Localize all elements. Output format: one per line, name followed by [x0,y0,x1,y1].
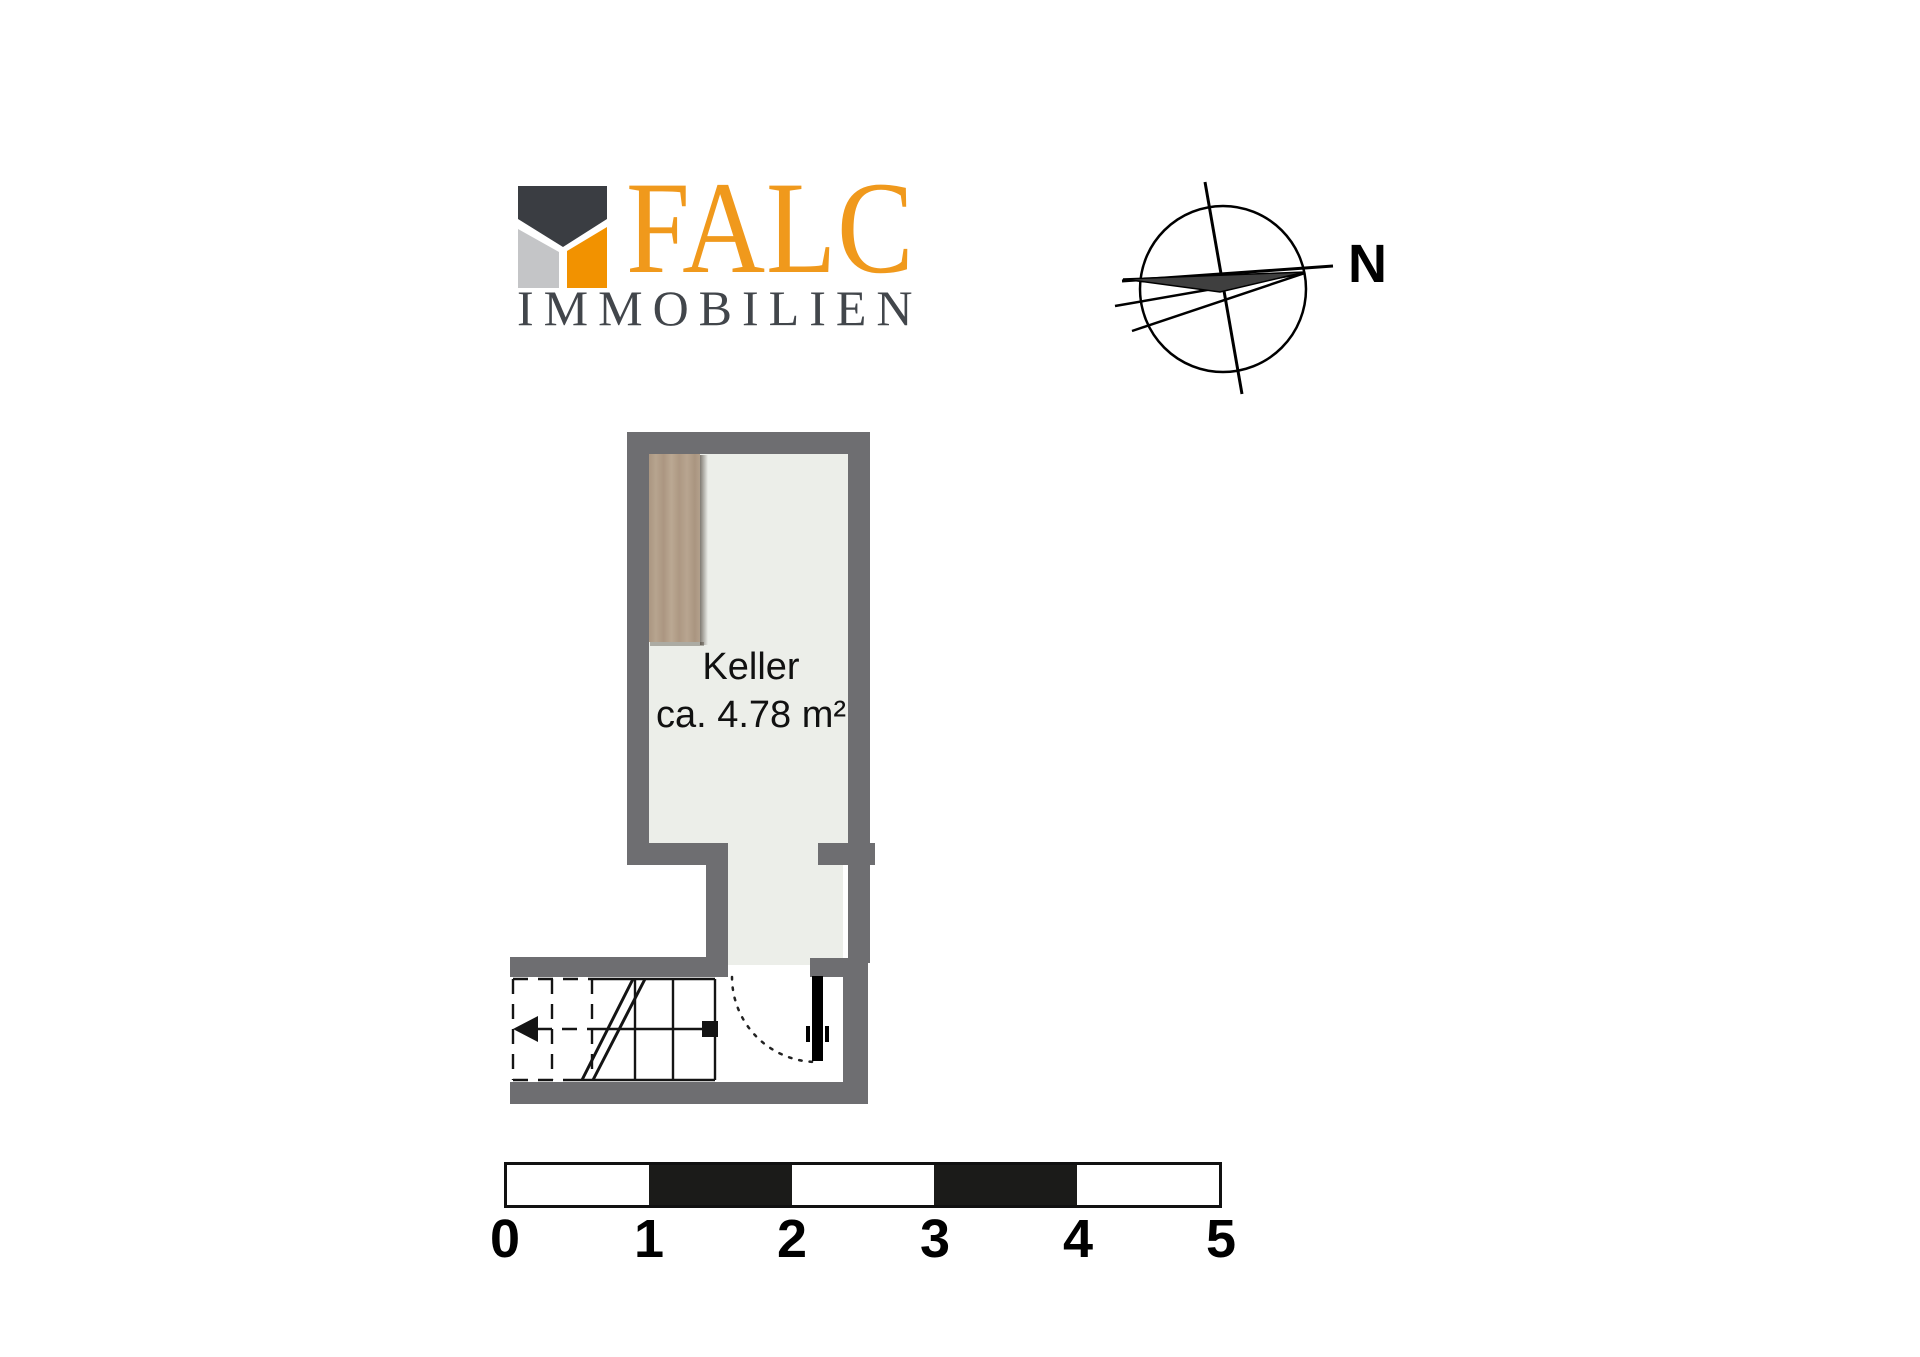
cabinet [648,453,708,646]
scale-bar [504,1162,1222,1208]
scale-label-2: 2 [777,1212,807,1266]
scale-segment-1-2 [649,1165,791,1205]
door-leaf [812,976,823,1061]
brand-subtitle: IMMOBILIEN [517,283,923,333]
scale-label-3: 3 [920,1212,950,1266]
door-handle-right [825,1026,829,1042]
scale-segment-3-4 [934,1165,1076,1205]
room-name-label: Keller [702,646,799,688]
scale-label-1: 1 [634,1212,664,1266]
floorplan-drawing: Keller ca. 4.78 m² [480,410,900,1120]
scale-segment-4-5 [1077,1165,1219,1205]
wall-bottom-left [627,843,706,865]
wall-left [627,432,649,865]
stair-hall-floor [510,965,843,1082]
scale-label-4: 4 [1063,1212,1093,1266]
wall-corridor-left [706,843,728,977]
compass-north-label: N [1348,234,1387,294]
scale-segment-0-1 [507,1165,649,1205]
scale-segment-2-3 [792,1165,934,1205]
wall-stub-right [818,843,875,865]
wall-right [848,432,870,963]
door-handle-left [806,1026,810,1042]
floorplan-page: FALC IMMOBILIEN N [0,0,1920,1357]
compass-icon: N [1075,150,1405,420]
brand-wordmark: FALC [626,162,915,294]
wall-top [627,432,870,454]
wall-lower-right [843,963,868,1082]
wall-bottom [510,1082,868,1104]
falc-logo-icon [518,183,608,289]
stair-start-marker [702,1021,718,1037]
wall-stair-top [510,957,728,977]
room-area-label: ca. 4.78 m² [656,694,846,736]
scale-label-0: 0 [490,1212,520,1266]
scale-label-5: 5 [1206,1212,1236,1266]
